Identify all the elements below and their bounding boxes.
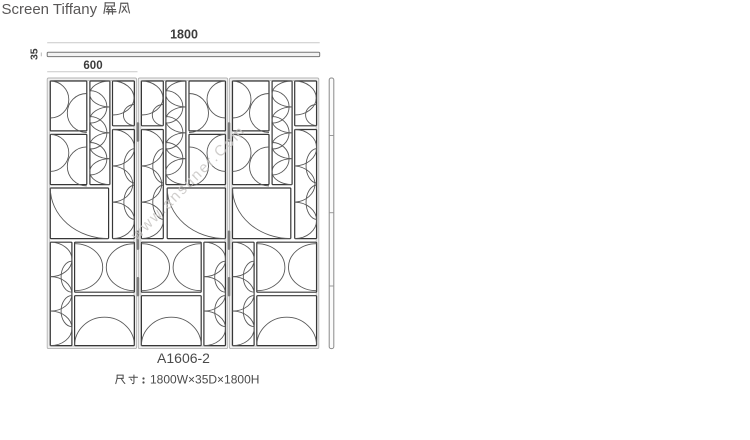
svg-text:35: 35	[29, 48, 41, 60]
svg-text:1800: 1800	[170, 28, 198, 42]
svg-text:A1606-2: A1606-2	[157, 350, 210, 366]
svg-text:Screen Tiffany: Screen Tiffany	[2, 1, 98, 18]
svg-text:1800W×35D×1800H: 1800W×35D×1800H	[150, 373, 259, 387]
svg-text:600: 600	[83, 60, 102, 72]
